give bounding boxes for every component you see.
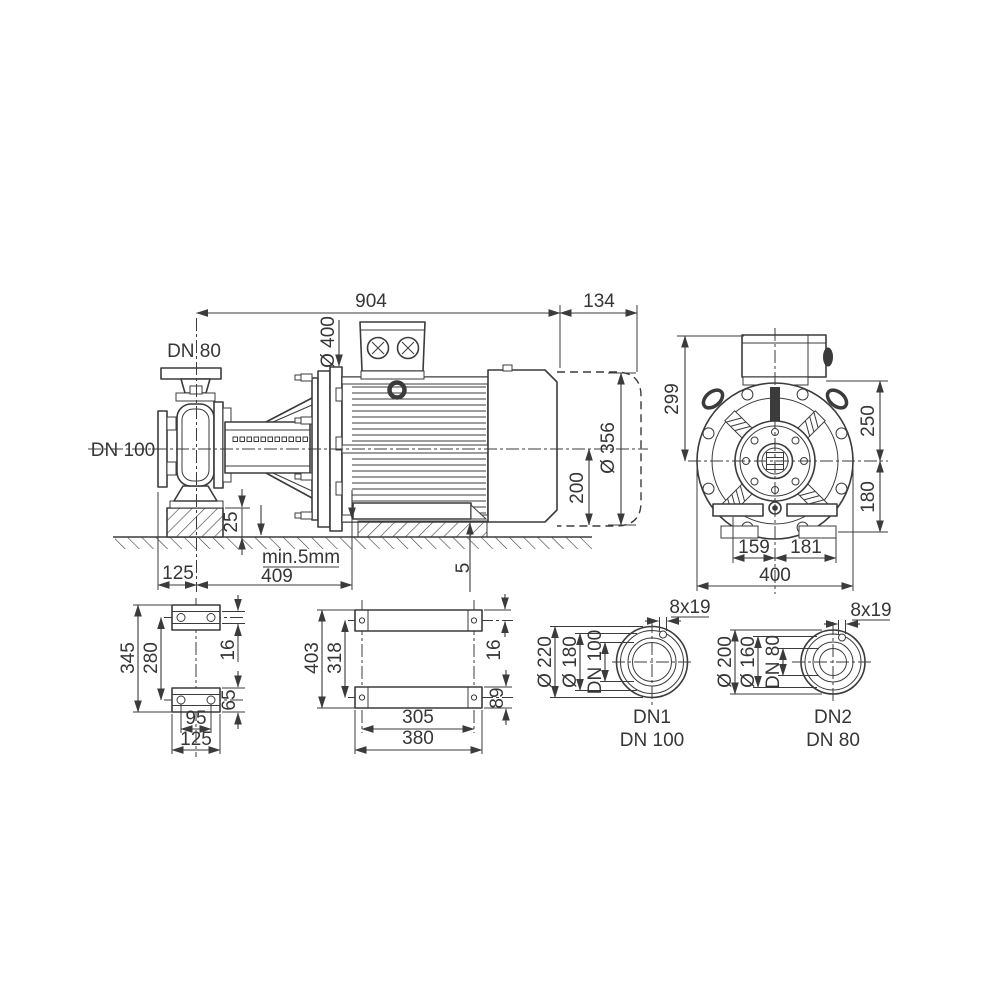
- dim-16-motorfoot: 16: [484, 639, 505, 660]
- dim-125-pumpfoot: 125: [180, 729, 212, 750]
- dim-89: 89: [487, 687, 508, 708]
- dim-d400: Ø 400: [318, 316, 339, 368]
- dim-25: 25: [221, 511, 242, 532]
- dim-400-endview: 400: [759, 565, 791, 586]
- end-terminal-box: [742, 335, 826, 377]
- label-dn100: DN 100: [91, 440, 155, 461]
- dim-159: 159: [738, 537, 770, 558]
- dim-d356: Ø 356: [598, 422, 619, 474]
- side-view: 904 134 DN 80 DN 100 Ø 400 Ø 356 200 25 …: [88, 291, 648, 592]
- pump-pedestal-hatch: [167, 508, 223, 537]
- dn2-dimensions: 8x19 Ø 200 Ø 160 DN 80: [715, 600, 892, 694]
- holes-8x19-dn1: 8x19: [669, 597, 710, 618]
- label-dn2: DN2: [814, 707, 852, 728]
- casing-backplate: [214, 402, 223, 488]
- dim-d220: Ø 220: [535, 636, 556, 688]
- dim-95-pumpfoot: 95: [185, 708, 206, 729]
- drawing-canvas: 904 134 DN 80 DN 100 Ø 400 Ø 356 200 25 …: [0, 0, 1000, 1000]
- dim-16-pumpfoot: 16: [218, 639, 239, 660]
- holes-8x19-dn2: 8x19: [850, 600, 891, 621]
- dn2-bolt-hole: [839, 634, 846, 641]
- label-dn1: DN1: [633, 707, 671, 728]
- end-view: 299 250 180 159 181 400: [662, 328, 888, 594]
- pump-foot-bracket: [174, 486, 217, 501]
- dim-dn80-bore: DN 80: [763, 635, 784, 689]
- label-dn80: DN 80: [167, 341, 221, 362]
- dim-d180: Ø 180: [560, 636, 581, 688]
- label-dn2-size: DN 80: [806, 730, 860, 751]
- motor-foot-front: [355, 610, 482, 631]
- discharge-flange: [161, 368, 221, 379]
- pump-dimensional-drawing: 904 134 DN 80 DN 100 Ø 400 Ø 356 200 25 …: [0, 0, 1000, 1000]
- dim-904: 904: [355, 291, 387, 312]
- flange-dn1-detail: 8x19 Ø 220 Ø 180 DN 100 DN1 DN 100: [535, 597, 711, 751]
- pump-foot-detail: 345 280 16 65 95 125: [118, 595, 246, 757]
- dim-dn100-bore: DN 100: [585, 630, 606, 694]
- motor-foot: [353, 503, 471, 519]
- dim-d160: Ø 160: [738, 636, 759, 688]
- dim-65: 65: [219, 689, 240, 710]
- fan-cover-plug: [503, 365, 512, 371]
- label-dn1-size: DN 100: [620, 730, 684, 751]
- terminal-box-pad: [361, 371, 424, 379]
- dim-180: 180: [858, 481, 879, 513]
- end-foot-right: [787, 504, 837, 516]
- dim-305: 305: [402, 707, 434, 728]
- dim-409: 409: [261, 566, 293, 587]
- fan-cover: [488, 370, 557, 522]
- suction-flange-rib-bottom: [167, 462, 176, 475]
- dim-299: 299: [662, 383, 683, 415]
- dim-125: 125: [162, 563, 194, 584]
- dim-345: 345: [118, 642, 139, 674]
- flange-dn2-detail: 8x19 Ø 200 Ø 160 DN 80 DN2 DN 80: [715, 600, 892, 751]
- motor-grout: [358, 521, 487, 537]
- suction-flange-rib-top: [167, 417, 176, 430]
- motor-foot-detail: 403 318 16 89 305 380: [302, 594, 513, 754]
- note-min5mm: min.5mm: [262, 547, 340, 568]
- motor-foot-rear: [355, 687, 482, 708]
- cable-gland: [823, 348, 833, 367]
- dim-d200: Ø 200: [715, 636, 736, 688]
- dim-318: 318: [325, 642, 346, 674]
- dim-5: 5: [453, 563, 474, 574]
- dim-200: 200: [567, 472, 588, 504]
- dim-181: 181: [790, 537, 822, 558]
- end-foot-left: [713, 504, 763, 516]
- dim-250: 250: [858, 405, 879, 437]
- ground-hatch: [115, 537, 592, 549]
- dim-403: 403: [302, 642, 323, 674]
- dn1-bolt-hole: [660, 631, 667, 638]
- dim-134: 134: [583, 291, 615, 312]
- dim-280: 280: [141, 642, 162, 674]
- dim-380: 380: [402, 728, 434, 749]
